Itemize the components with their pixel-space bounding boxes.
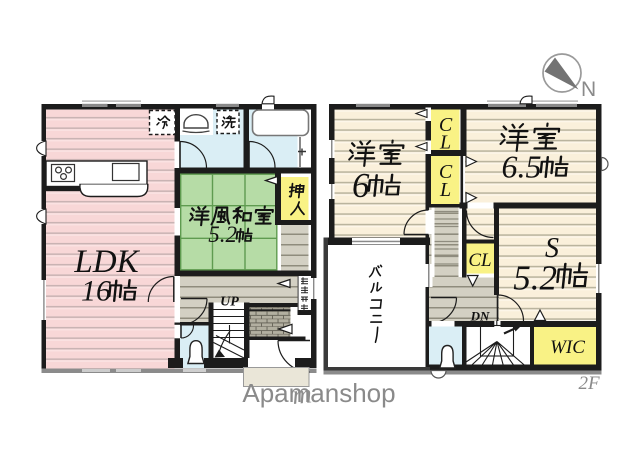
svg-text:2F: 2F	[578, 373, 600, 394]
svg-text:WIC: WIC	[550, 337, 585, 358]
svg-text:CL: CL	[468, 250, 491, 271]
svg-text:5.2: 5.2	[208, 222, 237, 247]
svg-text:N: N	[581, 78, 596, 101]
svg-text:6: 6	[352, 166, 370, 205]
svg-text:L: L	[439, 179, 451, 201]
svg-text:16: 16	[81, 275, 111, 308]
svg-text:UP: UP	[220, 295, 239, 310]
svg-text:6.5: 6.5	[502, 149, 542, 185]
svg-text:m: m	[291, 378, 313, 410]
svg-text:5.2: 5.2	[513, 259, 557, 298]
svg-text:Apamanshop: Apamanshop	[242, 378, 395, 408]
svg-text:DN: DN	[470, 309, 490, 324]
svg-text:L: L	[439, 132, 451, 154]
